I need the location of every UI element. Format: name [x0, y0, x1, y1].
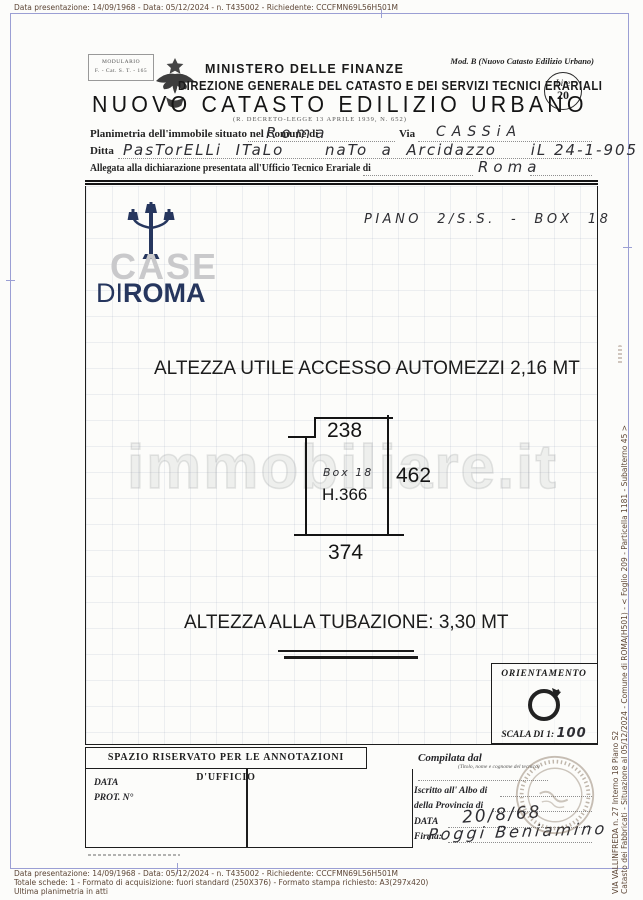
ufficio-field-value: Roma	[478, 158, 541, 176]
orientation-title: ORIENTAMENTO	[492, 669, 596, 679]
annotations-box: DATA PROT. N°	[85, 769, 413, 848]
bottom-margin-caption: Totale schede: 1 - Formato di acquisizio…	[14, 878, 428, 887]
registration-tick	[6, 280, 15, 281]
side-margin-caption: VIA VALLINFREDA n. 27 Interno 18 Piano S…	[611, 731, 620, 894]
top-margin-caption: Data presentazione: 14/09/1968 - Data: 0…	[14, 3, 398, 12]
comune-field-value: Roma	[266, 124, 329, 142]
dotted-fill-line	[530, 175, 592, 176]
ditta-field-label: Ditta	[90, 145, 114, 157]
via-field-label: Via	[399, 128, 415, 140]
altezza-tubazione-note: ALTEZZA ALLA TUBAZIONE: 3,30 MT	[184, 612, 509, 634]
illegible-margin-mark	[618, 345, 622, 365]
prot-label: PROT. N°	[94, 793, 133, 803]
lire-label: Lire	[545, 79, 581, 88]
compass-icon	[522, 679, 570, 727]
ditta-field-value: PasTorELLi ITaLo naTo a Arcidazzo iL 24-…	[123, 141, 638, 159]
floor-annotation: PIANO 2/S.S. - BOX 18	[364, 212, 611, 227]
dotted-fill-line	[363, 175, 473, 176]
modulario-line2: F. - Cat. S. T. - 165	[95, 68, 147, 74]
scale-value: 100	[557, 726, 587, 741]
bottom-margin-caption: Data presentazione: 14/09/1968 - Data: 0…	[14, 869, 398, 878]
scale-note: SCALA DI 1: 100	[492, 726, 596, 741]
wall-line-bottom	[294, 534, 404, 536]
registration-tick	[623, 247, 632, 248]
box-number-label: Box 18	[323, 466, 373, 479]
data-label: DATA	[94, 778, 118, 788]
side-margin-caption: Catasto dei Fabbricati - Situazione al 0…	[620, 425, 629, 894]
mod-b-label: Mod. B (Nuovo Catasto Edilizio Urbano)	[448, 56, 594, 66]
wall-line-step-horizontal	[288, 436, 316, 438]
dimension-right: 462	[396, 464, 431, 488]
scale-label: SCALA DI 1:	[501, 730, 554, 740]
round-stamp-icon	[505, 745, 605, 845]
bottom-margin-caption: Ultima planimetria in atti	[14, 887, 108, 896]
section-divider-rule	[85, 180, 598, 185]
document-main-title: NUOVO CATASTO EDILIZIO URBANO	[92, 91, 588, 118]
decree-note: (R. DECRETO-LEGGE 13 APRILE 1939, N. 652…	[90, 116, 550, 123]
ministry-title: MINISTERO DELLE FINANZE	[205, 62, 404, 76]
dimension-top: 238	[327, 419, 362, 443]
wall-line-step-vertical	[314, 417, 316, 438]
ufficio-field-label: Allegata alla dichiarazione presentata a…	[90, 163, 371, 174]
modulario-box: MODULARIO F. - Cat. S. T. - 165	[88, 54, 154, 81]
wall-line-left	[305, 436, 307, 536]
wall-line-right	[387, 415, 389, 536]
logo-roma-text: DIROMA	[96, 278, 206, 309]
dimension-bottom: 374	[328, 541, 363, 565]
orientation-box: ORIENTAMENTO SCALA DI 1: 100	[491, 663, 598, 744]
pipe-line	[284, 656, 418, 659]
annotations-divider	[246, 769, 248, 848]
iscritto-label: Iscritto all' Albo di	[414, 786, 487, 796]
modulario-line1: MODULARIO	[102, 59, 140, 65]
pipe-line	[278, 650, 414, 652]
internal-height-label: H.366	[322, 485, 367, 505]
altezza-accesso-note: ALTEZZA UTILE ACCESSO AUTOMEZZI 2,16 MT	[154, 358, 580, 380]
annotations-header-box: SPAZIO RISERVATO PER LE ANNOTAZIONI D'UF…	[85, 747, 367, 769]
plan-sheet: PIANO 2/S.S. - BOX 18 CASE DIROMA immobi…	[85, 186, 598, 745]
logo-roma: ROMA	[123, 278, 206, 308]
compilata-label: Compilata dal	[418, 752, 482, 764]
via-field-value: CASSiA	[436, 124, 522, 140]
micro-print-line	[88, 854, 180, 856]
scanned-cadastral-document: Data presentazione: 14/09/1968 - Data: 0…	[0, 0, 643, 900]
logo-di: DI	[96, 278, 123, 308]
